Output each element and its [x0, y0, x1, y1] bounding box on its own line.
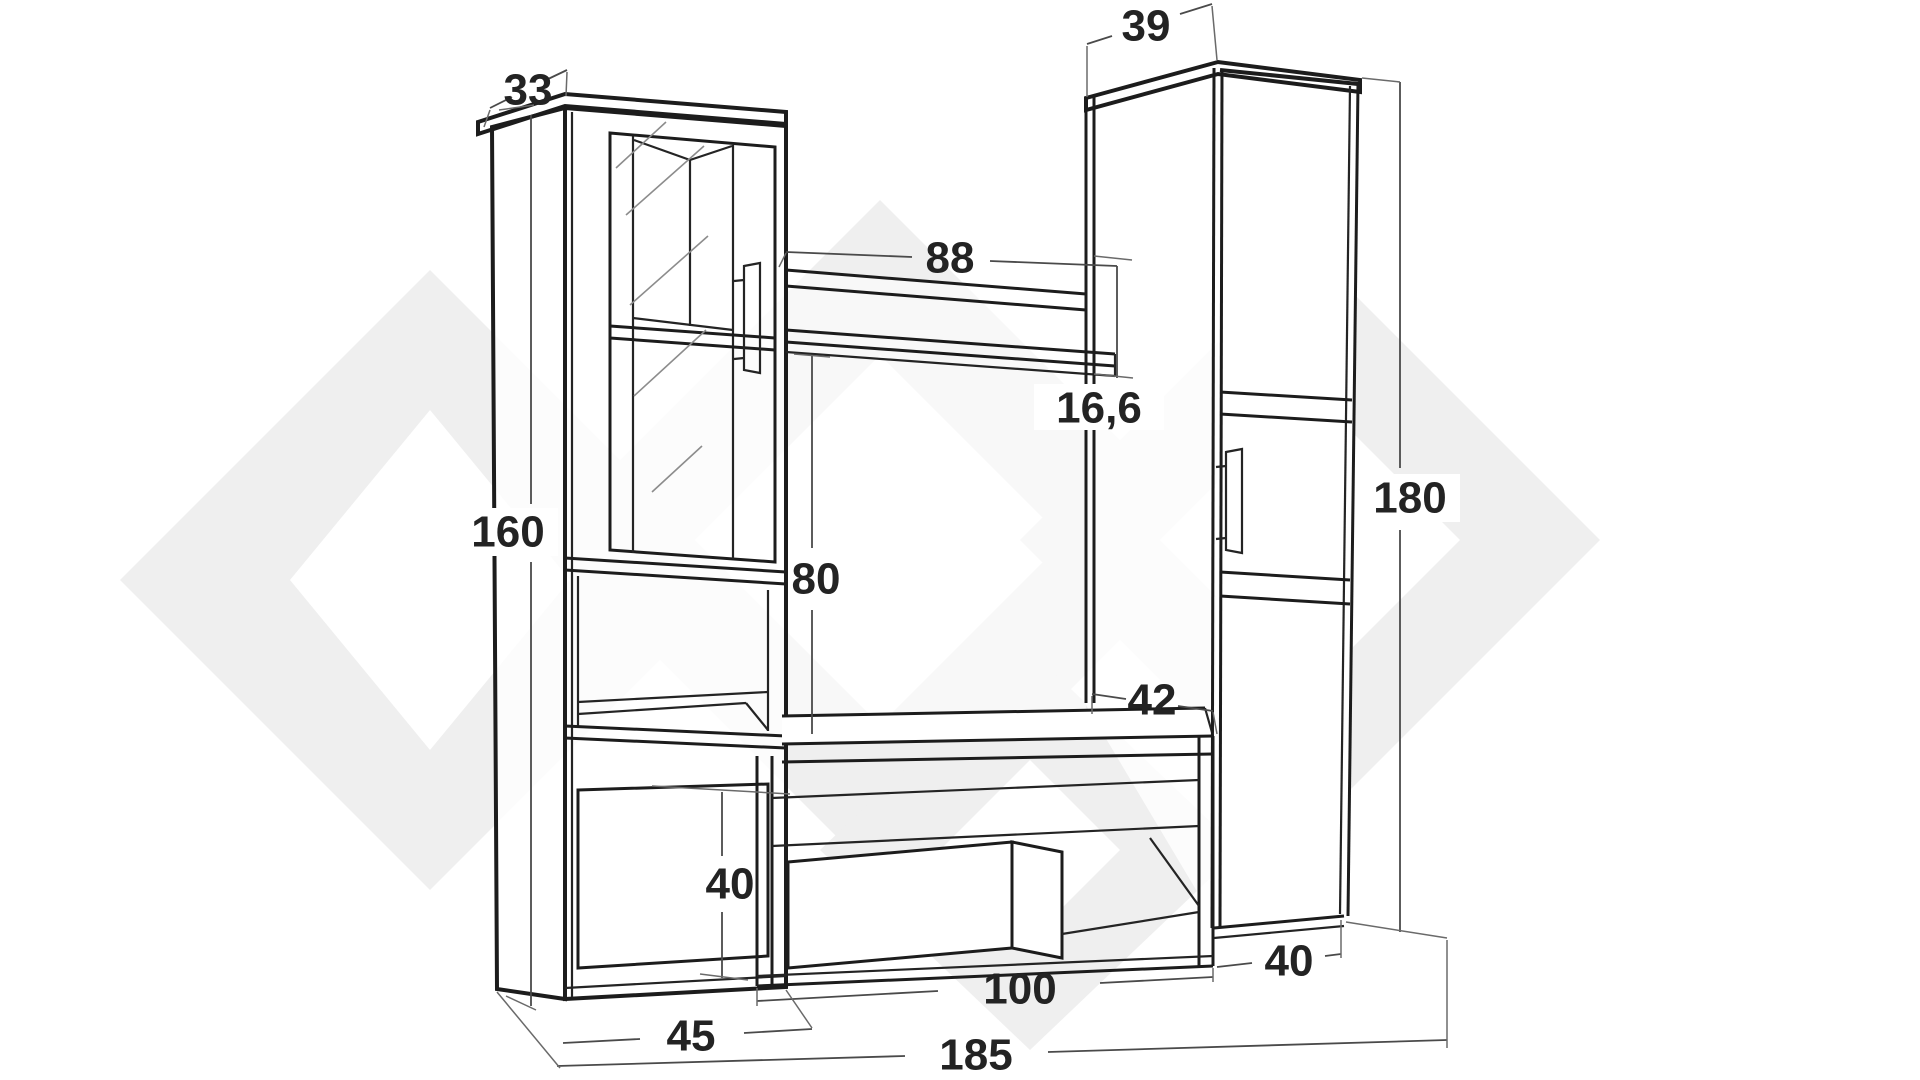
dim-label-160: 160	[471, 508, 544, 557]
dim-label-88: 88	[926, 234, 975, 283]
dim-right-cabinet-height: 180	[1346, 78, 1460, 938]
dim-right-bottom-width: 40	[1217, 920, 1341, 986]
dim-label-180: 180	[1373, 474, 1446, 523]
drawer-front-fill	[788, 842, 1012, 968]
dim-label-45: 45	[667, 1012, 716, 1061]
furniture-dimension-diagram: 33 39 88 16,6	[0, 0, 1920, 1080]
wall-panel-face	[786, 270, 1086, 718]
dim-label-185: 185	[939, 1031, 1012, 1080]
dim-label-16-6: 16,6	[1056, 384, 1142, 433]
dim-label-80: 80	[792, 555, 841, 604]
drawer-side-fill	[1012, 842, 1062, 958]
right-cabinet-corner-edge	[1220, 70, 1222, 928]
dim-label-42: 42	[1128, 676, 1177, 725]
dim-label-39: 39	[1122, 2, 1171, 51]
dim-tv-bench-width: 100	[757, 965, 1213, 1014]
right-cabinet-front-face	[1214, 70, 1358, 928]
diagram-canvas: 33 39 88 16,6	[0, 0, 1920, 1080]
dim-label-100: 100	[983, 965, 1056, 1014]
dim-label-40-right: 40	[1265, 937, 1314, 986]
right-cabinet-corner-edge	[1212, 68, 1214, 928]
dim-label-40-left: 40	[706, 860, 755, 909]
dim-label-33: 33	[504, 66, 553, 115]
